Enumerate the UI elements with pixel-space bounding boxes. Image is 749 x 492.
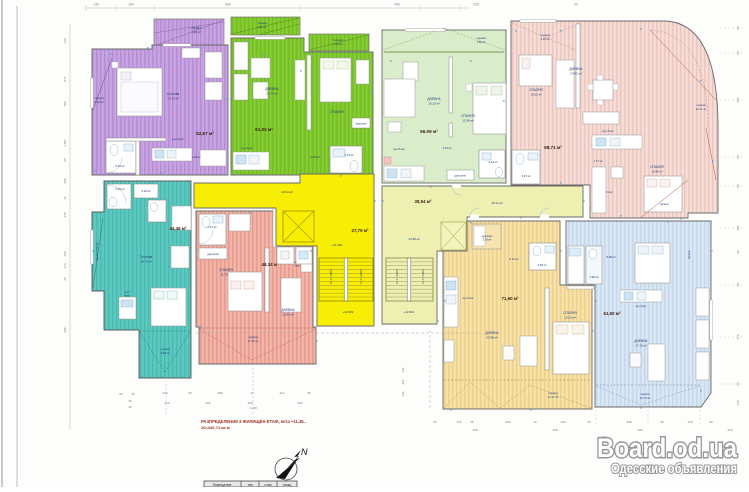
svg-text:80: 80 bbox=[709, 420, 713, 424]
svg-text:44,46 м²: 44,46 м² bbox=[170, 226, 187, 231]
svg-text:35: 35 bbox=[660, 420, 664, 424]
svg-text:25: 25 bbox=[63, 158, 67, 162]
svg-text:20=340,74 кв.м: 20=340,74 кв.м bbox=[201, 425, 230, 430]
svg-text:СПАЛНЯ: СПАЛНЯ bbox=[650, 165, 664, 169]
svg-text:6.13 м²: 6.13 м² bbox=[509, 257, 518, 261]
svg-text:25: 25 bbox=[470, 420, 474, 424]
svg-text:кух.бокс: кух.бокс bbox=[172, 137, 184, 141]
svg-text:2.56 м²: 2.56 м² bbox=[310, 155, 319, 159]
svg-text:210: 210 bbox=[727, 428, 732, 432]
svg-text:430: 430 bbox=[401, 391, 405, 396]
svg-text:+12.822: +12.822 bbox=[343, 310, 354, 314]
svg-text:242: 242 bbox=[162, 391, 167, 395]
svg-text:3.30 м²: 3.30 м² bbox=[540, 37, 549, 41]
svg-text:Одесские объявления: Одесские объявления bbox=[611, 461, 737, 476]
svg-text:ДНЕВНА: ДНЕВНА bbox=[485, 331, 499, 335]
svg-text:788: 788 bbox=[63, 101, 67, 106]
svg-text:145: 145 bbox=[456, 420, 461, 424]
svg-text:3.95 м²: 3.95 м² bbox=[537, 263, 546, 267]
svg-text:4.38 м²: 4.38 м² bbox=[191, 155, 200, 159]
svg-text:3.30 м²: 3.30 м² bbox=[191, 30, 201, 34]
svg-text:кух.бокс: кух.бокс bbox=[636, 304, 647, 308]
svg-text:430: 430 bbox=[401, 379, 405, 384]
svg-text:3.97 м²: 3.97 м² bbox=[521, 174, 530, 178]
svg-text:тераса: тераса bbox=[687, 250, 691, 259]
svg-text:12: 12 bbox=[63, 196, 67, 200]
svg-text:5.39 м²: 5.39 м² bbox=[115, 187, 124, 191]
svg-text:5.40 м²: 5.40 м² bbox=[94, 100, 103, 104]
svg-text:600: 600 bbox=[63, 178, 67, 183]
svg-text:4.01 м²: 4.01 м² bbox=[442, 146, 451, 150]
svg-text:25: 25 bbox=[307, 391, 311, 395]
svg-text:Помещение: Помещение bbox=[213, 483, 232, 487]
svg-text:800: 800 bbox=[225, 3, 231, 7]
svg-text:7.86 м²: 7.86 м² bbox=[476, 40, 485, 44]
svg-text:9 x 17,1/28,5: 9 x 17,1/28,5 bbox=[421, 268, 425, 284]
svg-text:1.77 м²: 1.77 м² bbox=[593, 159, 602, 163]
svg-text:СПАЛНЯ: СПАЛНЯ bbox=[529, 88, 543, 92]
svg-text:38,94 м²: 38,94 м² bbox=[415, 199, 432, 204]
svg-text:3.26 м²: 3.26 м² bbox=[141, 189, 150, 193]
svg-text:12.96 м²: 12.96 м² bbox=[462, 119, 473, 123]
svg-text:СПАЛНЯ: СПАЛНЯ bbox=[563, 311, 577, 315]
svg-text:25: 25 bbox=[131, 392, 135, 396]
svg-text:12: 12 bbox=[533, 420, 537, 424]
svg-text:СПАЛНЯ: СПАЛНЯ bbox=[461, 114, 475, 118]
svg-text:24.92 м²: 24.92 м² bbox=[570, 72, 581, 76]
svg-text:17.40 м²: 17.40 м² bbox=[248, 339, 259, 343]
svg-text:Столова: Столова bbox=[140, 255, 153, 259]
svg-text:2.67 м²: 2.67 м² bbox=[207, 225, 216, 229]
svg-text:23.70 м²: 23.70 м² bbox=[266, 92, 277, 96]
svg-text:тераса 4.76 м²: тераса 4.76 м² bbox=[95, 243, 99, 262]
svg-text:330: 330 bbox=[505, 420, 510, 424]
svg-text:400: 400 bbox=[472, 428, 477, 432]
svg-text:дрешник: дрешник bbox=[454, 174, 466, 178]
svg-text:6.34 м²: 6.34 м² bbox=[115, 164, 124, 168]
svg-text:14.98 м²: 14.98 м² bbox=[408, 237, 419, 241]
svg-text:430: 430 bbox=[637, 428, 642, 432]
svg-text:209: 209 bbox=[63, 327, 67, 332]
svg-text:52,57 м²: 52,57 м² bbox=[196, 131, 214, 136]
svg-text:ДНЕВНА: ДНЕВНА bbox=[569, 67, 583, 71]
svg-text:18.14 м²: 18.14 м² bbox=[491, 201, 502, 205]
svg-text:130: 130 bbox=[63, 38, 67, 43]
svg-text:420: 420 bbox=[401, 367, 405, 372]
svg-text:N: N bbox=[301, 447, 308, 457]
svg-text:61,03 м²: 61,03 м² bbox=[255, 127, 273, 132]
svg-text:240: 240 bbox=[560, 420, 565, 424]
svg-text:бокс: бокс bbox=[124, 294, 130, 298]
svg-text:430: 430 bbox=[552, 428, 557, 432]
svg-text:164: 164 bbox=[128, 3, 134, 7]
svg-text:дрешник: дрешник bbox=[356, 123, 367, 126]
svg-text:12.95 м²: 12.95 м² bbox=[282, 313, 293, 317]
svg-text:9 x 17,1/28,5: 9 x 17,1/28,5 bbox=[329, 268, 333, 284]
svg-text:25: 25 bbox=[128, 399, 132, 403]
svg-text:1.387: 1.387 bbox=[63, 139, 67, 147]
svg-text:20: 20 bbox=[128, 405, 132, 409]
svg-text:312: 312 bbox=[279, 391, 284, 395]
svg-text:48,34 м²: 48,34 м² bbox=[262, 262, 279, 267]
svg-text:18.76 м²: 18.76 м² bbox=[140, 260, 151, 264]
svg-text:71,60 м²: 71,60 м² bbox=[502, 296, 519, 301]
svg-text:ДНЕВНА: ДНЕВНА bbox=[281, 308, 295, 312]
svg-text:17.19 м²: 17.19 м² bbox=[635, 344, 646, 348]
svg-text:60: 60 bbox=[119, 392, 123, 396]
svg-text:61,50 м²: 61,50 м² bbox=[604, 311, 621, 316]
svg-text:20.72 м²: 20.72 м² bbox=[167, 97, 178, 101]
svg-text:290: 290 bbox=[297, 401, 302, 405]
svg-text:9 x 17,1/28,5: 9 x 17,1/28,5 bbox=[359, 268, 363, 284]
svg-text:90: 90 bbox=[736, 250, 740, 254]
svg-text:2.98 м²: 2.98 м² bbox=[589, 275, 598, 279]
svg-text:13.06 м²: 13.06 м² bbox=[564, 316, 575, 320]
svg-text:дрешник: дрешник bbox=[207, 252, 219, 256]
svg-text:тип: тип bbox=[247, 483, 252, 487]
svg-text:РАЗПРЕДЕЛЕНИЕ 4 ЖИЛИЩЕН ЕТАЖ,: РАЗПРЕДЕЛЕНИЕ 4 ЖИЛИЩЕН ЕТАЖ, кота +11.4… bbox=[201, 419, 306, 424]
svg-text:288: 288 bbox=[217, 391, 222, 395]
svg-text:ДНЕВНА: ДНЕВНА bbox=[265, 87, 279, 91]
svg-text:198: 198 bbox=[63, 251, 67, 256]
svg-text:12: 12 bbox=[250, 391, 254, 395]
svg-text:300: 300 bbox=[164, 401, 169, 405]
svg-text:16.70 м²: 16.70 м² bbox=[640, 396, 651, 400]
svg-text:23.98 м²: 23.98 м² bbox=[486, 336, 497, 340]
svg-text:3.16 м²: 3.16 м² bbox=[488, 160, 497, 164]
svg-text:Столова: Столова bbox=[167, 92, 180, 96]
svg-text:22.11 м²: 22.11 м² bbox=[696, 107, 706, 111]
svg-text:10.62 м²: 10.62 м² bbox=[530, 93, 541, 97]
svg-text:3.16 м²: 3.16 м² bbox=[344, 153, 353, 157]
svg-text:ДНЕВНА: ДНЕВНА bbox=[634, 339, 648, 343]
svg-text:90: 90 bbox=[574, 3, 578, 7]
svg-text:10.86 м²: 10.86 м² bbox=[651, 170, 662, 174]
svg-text:тераса: тераса bbox=[660, 202, 669, 206]
svg-text:140: 140 bbox=[687, 420, 692, 424]
svg-text:320: 320 bbox=[205, 401, 210, 405]
svg-text:25: 25 bbox=[587, 420, 591, 424]
svg-text:130: 130 bbox=[93, 3, 99, 7]
svg-text:130: 130 bbox=[736, 400, 740, 405]
svg-text:400: 400 bbox=[394, 3, 400, 7]
svg-text:Board.od.ua: Board.od.ua bbox=[597, 433, 738, 463]
svg-text:СПАЛНЯ: СПАЛНЯ bbox=[219, 268, 233, 272]
svg-text:2.61 м²: 2.61 м² bbox=[257, 25, 266, 29]
svg-text:14.17 м²: 14.17 м² bbox=[548, 395, 559, 399]
svg-text:56.09 м²: 56.09 м² bbox=[420, 129, 438, 134]
svg-text:378: 378 bbox=[63, 212, 67, 217]
svg-text:кух.бокс: кух.бокс bbox=[463, 296, 474, 300]
svg-text:25: 25 bbox=[188, 391, 192, 395]
svg-text:+12.821: +12.821 bbox=[404, 310, 415, 314]
svg-text:225: 225 bbox=[473, 3, 479, 7]
svg-text:8.38 м²: 8.38 м² bbox=[160, 351, 169, 355]
svg-text:2.26 м²: 2.26 м² bbox=[483, 238, 492, 242]
svg-text:20.94 м²: 20.94 м² bbox=[281, 190, 292, 194]
svg-text:25: 25 bbox=[63, 277, 67, 281]
svg-text:360: 360 bbox=[247, 401, 252, 405]
svg-text:308: 308 bbox=[626, 420, 631, 424]
svg-text:стаи: стаи bbox=[265, 483, 272, 487]
svg-text:5.38 м²: 5.38 м² bbox=[606, 255, 615, 259]
svg-text:16.13 м²: 16.13 м² bbox=[428, 102, 439, 106]
svg-text:9 x 17,1/28,5: 9 x 17,1/28,5 bbox=[395, 268, 399, 284]
svg-text:кух.бокс: кух.бокс bbox=[393, 147, 405, 151]
svg-text:кух.бокс: кух.бокс bbox=[602, 129, 614, 133]
svg-text:27,79 м²: 27,79 м² bbox=[352, 228, 369, 233]
svg-text:ДНЕВНА: ДНЕВНА bbox=[427, 97, 441, 101]
svg-text:4.20 м²: 4.20 м² bbox=[333, 42, 342, 46]
svg-text:кух.бокс: кух.бокс bbox=[241, 146, 253, 150]
svg-text:+11.462: +11.462 bbox=[332, 243, 343, 247]
svg-text:871: 871 bbox=[63, 76, 67, 81]
svg-text:СПАЛНЯ: СПАЛНЯ bbox=[330, 110, 344, 114]
svg-text:98,71 м²: 98,71 м² bbox=[544, 145, 562, 150]
svg-text:173: 173 bbox=[63, 263, 67, 268]
svg-text:площ: площ bbox=[283, 483, 292, 487]
svg-text:25: 25 bbox=[433, 420, 437, 424]
